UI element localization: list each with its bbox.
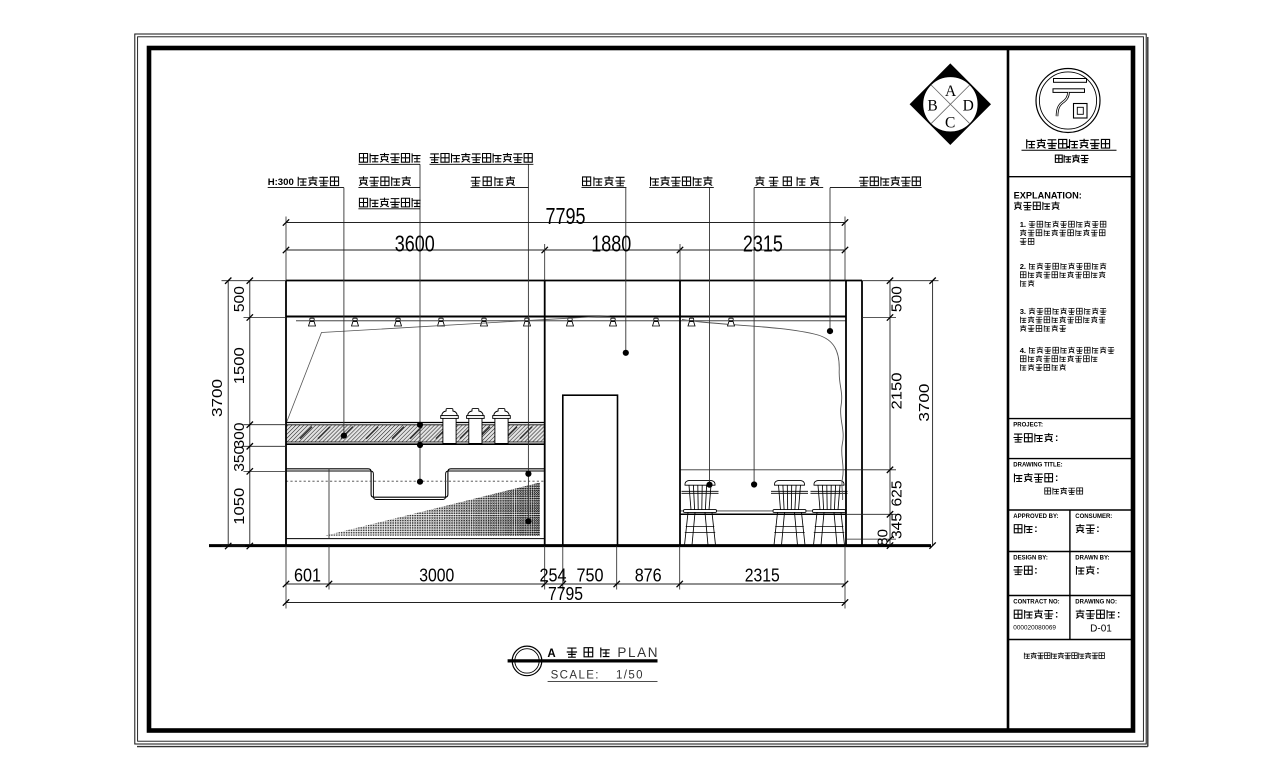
svg-text:B: B	[927, 98, 937, 115]
svg-text:H:300: H:300	[268, 177, 294, 188]
svg-text:7795: 7795	[546, 203, 586, 229]
svg-text:500: 500	[231, 286, 248, 312]
svg-text:3.: 3.	[1020, 307, 1026, 316]
svg-text:CONSUMER:: CONSUMER:	[1075, 514, 1112, 520]
svg-text::: :	[1096, 524, 1099, 535]
svg-text:3000: 3000	[419, 565, 454, 586]
svg-text:500: 500	[889, 286, 906, 312]
svg-text:DRAWN BY:: DRAWN BY:	[1075, 556, 1109, 562]
svg-text:1.: 1.	[1020, 220, 1026, 229]
svg-text:2315: 2315	[745, 565, 780, 586]
svg-text:DRAWING NO:: DRAWING NO:	[1075, 600, 1117, 606]
svg-text:625: 625	[889, 481, 906, 507]
svg-text:SCALE:: SCALE:	[551, 670, 600, 682]
svg-text:EXPLANATION:: EXPLANATION:	[1014, 190, 1082, 200]
svg-text::: :	[1034, 566, 1037, 577]
svg-text:PLAN: PLAN	[617, 645, 659, 660]
svg-text:3700: 3700	[209, 379, 226, 417]
svg-text:1880: 1880	[591, 231, 631, 257]
svg-text:D: D	[963, 98, 974, 115]
svg-text:2315: 2315	[743, 231, 783, 257]
svg-text:3600: 3600	[395, 231, 435, 257]
svg-text:2.: 2.	[1020, 262, 1026, 271]
svg-text:80: 80	[875, 529, 892, 546]
svg-text:1500: 1500	[231, 347, 248, 384]
svg-text:3700: 3700	[916, 384, 933, 422]
svg-text::: :	[1034, 524, 1037, 535]
svg-text::: :	[1055, 610, 1058, 621]
svg-text:4.: 4.	[1020, 346, 1026, 355]
svg-text:A: A	[547, 648, 555, 660]
svg-text:D-01: D-01	[1090, 624, 1112, 635]
svg-text:300: 300	[231, 423, 248, 449]
svg-text:PROJECT:: PROJECT:	[1013, 422, 1043, 428]
svg-text:601: 601	[294, 565, 321, 586]
svg-text:A: A	[945, 83, 957, 100]
svg-text:876: 876	[635, 565, 662, 586]
svg-text:DRAWING TITLE:: DRAWING TITLE:	[1013, 462, 1062, 468]
svg-text:000020080069: 000020080069	[1013, 625, 1056, 632]
svg-text:APPROVED BY:: APPROVED BY:	[1013, 514, 1058, 520]
svg-text::: :	[1117, 610, 1120, 621]
svg-text::: :	[1096, 566, 1099, 577]
svg-text:CONTRACT NO:: CONTRACT NO:	[1013, 600, 1059, 606]
svg-text::: :	[1055, 473, 1058, 484]
svg-text:2150: 2150	[889, 373, 906, 410]
svg-text:C: C	[945, 114, 955, 131]
svg-text::: :	[1055, 433, 1058, 444]
svg-text:1050: 1050	[231, 488, 248, 525]
svg-text:7795: 7795	[548, 583, 583, 604]
svg-text:1/50: 1/50	[616, 670, 644, 682]
svg-text:DESIGN BY:: DESIGN BY:	[1013, 556, 1048, 562]
svg-text:350: 350	[231, 446, 248, 472]
